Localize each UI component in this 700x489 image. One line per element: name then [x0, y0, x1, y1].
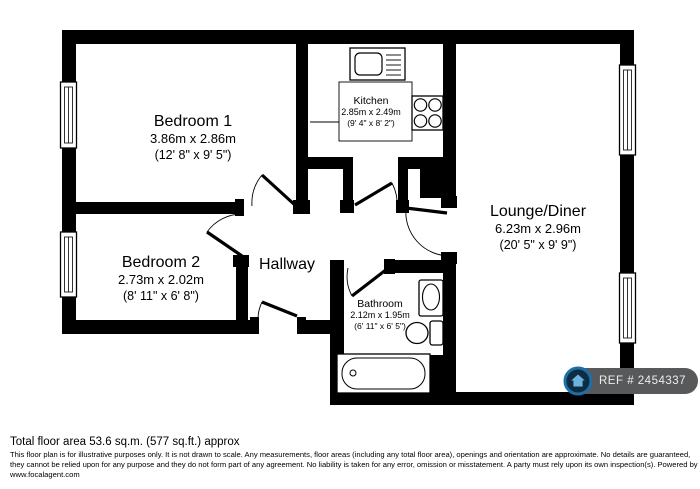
- room-name: Bedroom 1: [150, 112, 236, 131]
- door-lounge: [406, 208, 449, 256]
- door-kitchen: [355, 183, 397, 207]
- room-dimensions-metric: 2.12m x 1.95m: [350, 310, 410, 321]
- room-label-bedroom-2: Bedroom 2 2.73m x 2.02m (8' 11" x 6' 8"): [118, 253, 204, 304]
- window-lounge-top-icon: [620, 65, 636, 155]
- wall: [236, 258, 248, 334]
- wall: [420, 162, 443, 198]
- toilet-icon: [406, 321, 443, 345]
- door-bedroom2: [207, 214, 242, 256]
- door-leaf: [352, 269, 387, 296]
- wall-end-cap: [250, 317, 259, 334]
- room-dimensions-imperial: (20' 5" x 9' 9"): [490, 237, 586, 253]
- wall-end-cap: [235, 199, 244, 216]
- door-leaf: [262, 175, 296, 206]
- wall: [62, 30, 634, 44]
- room-name: Lounge/Diner: [490, 202, 586, 221]
- room-label-hallway: Hallway: [259, 255, 315, 274]
- footer: Total floor area 53.6 sq.m. (577 sq.ft.)…: [10, 434, 695, 481]
- door-leaf: [262, 302, 297, 316]
- wall-end-cap: [297, 317, 306, 334]
- room-dimensions-metric: 3.86m x 2.86m: [150, 131, 236, 147]
- ref-number: REF # 2454337: [599, 375, 686, 387]
- window-lounge-bottom-icon: [620, 273, 636, 343]
- door-bathroom: [347, 268, 387, 296]
- disclaimer-line-2: they cannot be relied upon for any purpo…: [10, 460, 695, 470]
- wall-end-cap: [396, 200, 409, 213]
- room-dimensions-imperial: (6' 11" x 6' 5"): [350, 321, 410, 331]
- wall-end-cap: [441, 252, 457, 264]
- wall: [76, 202, 242, 214]
- door-leaf: [355, 183, 392, 205]
- kitchen-sink-icon: [350, 48, 405, 80]
- door-leaf: [207, 232, 242, 256]
- wall: [443, 44, 456, 207]
- basin-icon: [419, 280, 443, 316]
- wall-end-cap: [293, 200, 310, 214]
- room-label-bedroom-1: Bedroom 1 3.86m x 2.86m (12' 8" x 9' 5"): [150, 112, 236, 163]
- house-icon: [563, 366, 593, 396]
- door-arc: [207, 214, 242, 232]
- room-dimensions-metric: 2.85m x 2.49m: [341, 107, 401, 118]
- disclaimer-line-1: This floor plan is for illustrative purp…: [10, 450, 695, 460]
- wall: [62, 320, 257, 334]
- wall: [296, 44, 308, 213]
- room-dimensions-metric: 2.73m x 2.02m: [118, 272, 204, 288]
- room-name: Bathroom: [350, 298, 410, 310]
- disclaimer-line-3: www.focalagent.com: [10, 470, 695, 480]
- door-arc: [258, 302, 262, 318]
- room-dimensions-imperial: (12' 8" x 9' 5"): [150, 147, 236, 163]
- door-leaf: [406, 208, 447, 213]
- wall: [387, 260, 443, 273]
- door-arc: [347, 268, 352, 296]
- window-bedroom2-icon: [61, 232, 77, 297]
- bathtub-icon: [337, 354, 430, 393]
- door-arc: [406, 208, 449, 256]
- room-dimensions-imperial: (8' 11" x 6' 8"): [118, 288, 204, 304]
- door-arc: [252, 175, 262, 206]
- room-name: Bedroom 2: [118, 253, 204, 272]
- floor-plan-page: Bedroom 1 3.86m x 2.86m (12' 8" x 9' 5")…: [0, 0, 700, 489]
- wall: [443, 255, 456, 355]
- window-bedroom1-icon: [61, 82, 77, 148]
- room-name: Hallway: [259, 255, 315, 274]
- room-label-bathroom: Bathroom 2.12m x 1.95m (6' 11" x 6' 5"): [350, 298, 410, 331]
- room-name: Kitchen: [341, 95, 401, 107]
- door-entrance: [258, 302, 297, 318]
- wall-end-cap: [340, 200, 354, 213]
- room-dimensions-imperial: (9' 4" x 8' 2"): [341, 118, 401, 128]
- hob-icon: [412, 96, 443, 130]
- floor-plan-drawing: [0, 0, 700, 430]
- ref-badge: REF # 2454337: [565, 368, 698, 394]
- wall-end-cap: [441, 196, 457, 208]
- wall: [428, 355, 456, 395]
- door-bedroom1: [252, 175, 296, 206]
- room-dimensions-metric: 6.23m x 2.96m: [490, 221, 586, 237]
- total-floor-area: Total floor area 53.6 sq.m. (577 sq.ft.)…: [10, 434, 695, 450]
- room-label-lounge-diner: Lounge/Diner 6.23m x 2.96m (20' 5" x 9' …: [490, 202, 586, 253]
- room-label-kitchen: Kitchen 2.85m x 2.49m (9' 4" x 8' 2"): [341, 95, 401, 128]
